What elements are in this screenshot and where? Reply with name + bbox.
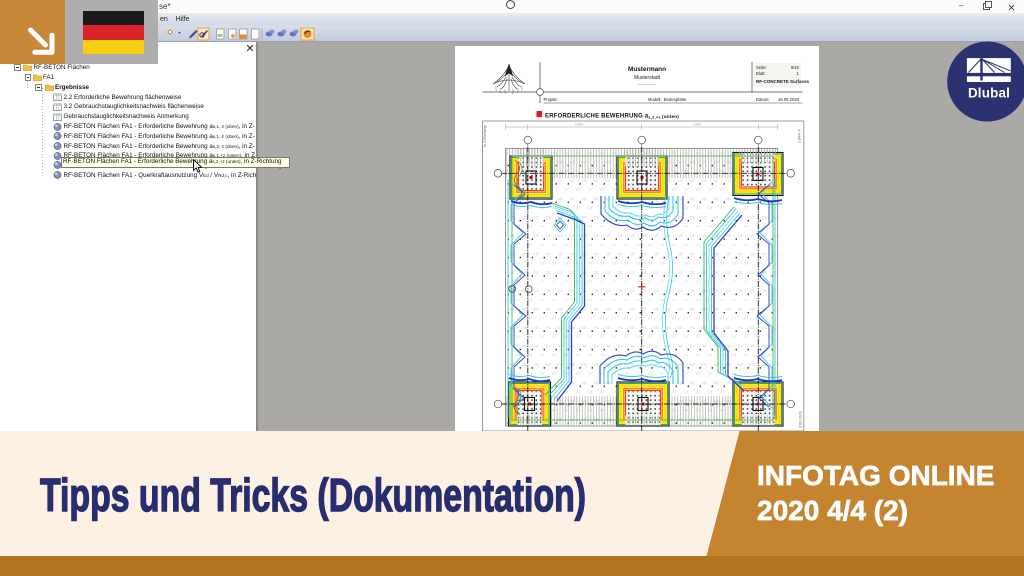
svg-text:0.01 cm/m: 0.01 cm/m: [799, 411, 803, 428]
svg-text:Modell: Bodenplatte: Modell: Bodenplatte: [648, 97, 687, 102]
svg-text:2.84/4 m: 2.84/4 m: [798, 129, 802, 143]
svg-text:Dlubal: Dlubal: [968, 85, 1010, 100]
svg-text:------------: ------------: [638, 82, 656, 87]
svg-text:In Z-Richtung: In Z-Richtung: [483, 125, 487, 147]
svg-text:Seite:: Seite:: [756, 65, 767, 70]
svg-text:Musterstadt: Musterstadt: [634, 75, 661, 81]
svg-text:Mustermann: Mustermann: [628, 66, 666, 73]
svg-text:9/10: 9/10: [791, 65, 800, 70]
svg-text:2.000: 2.000: [693, 123, 701, 127]
svg-text:Projekt:: Projekt:: [544, 97, 558, 102]
svg-text:16.05.2020: 16.05.2020: [778, 97, 800, 102]
svg-text:Blatt:: Blatt:: [756, 71, 766, 76]
svg-text:Datum:: Datum:: [756, 97, 770, 102]
svg-text:ERFORDERLICHE BEWEHRUNG as,2,+: ERFORDERLICHE BEWEHRUNG as,2,+z (unten): [545, 114, 679, 120]
svg-text:2.000: 2.000: [575, 123, 583, 127]
svg-text:RF-CONCRETE Surfaces: RF-CONCRETE Surfaces: [756, 79, 810, 84]
